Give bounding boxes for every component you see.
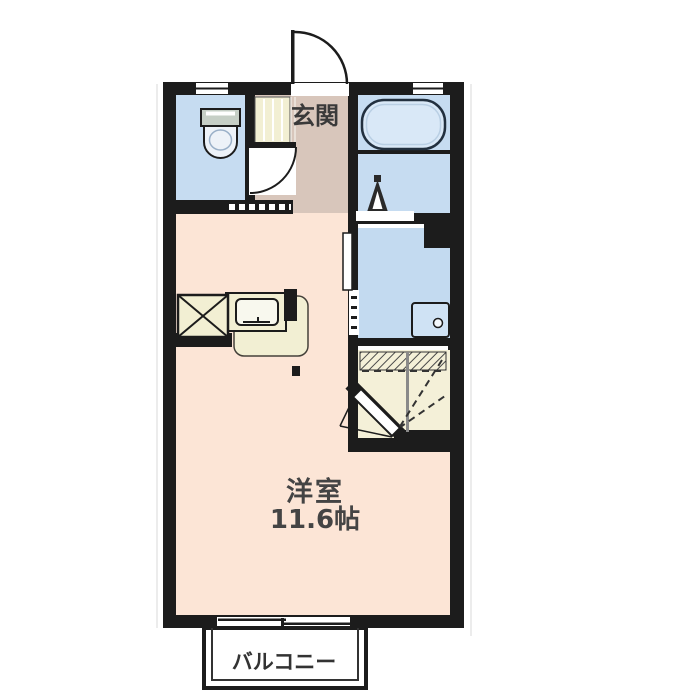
sliding-window-icon	[217, 617, 350, 627]
interior-door-swing-icon	[249, 142, 296, 195]
hall-passage	[293, 200, 348, 213]
label-entrance: 玄関	[291, 102, 339, 130]
washroom-sink-icon	[412, 303, 449, 337]
entrance-door-swing-icon	[291, 30, 349, 96]
faint-guide-right	[470, 84, 472, 636]
kitchen-wall-stub	[284, 289, 297, 321]
washroom-top-line	[358, 224, 424, 228]
window-bath-icon	[413, 83, 443, 94]
bath-divider-wall	[358, 150, 450, 154]
refrigerator-space-icon	[178, 295, 228, 337]
window-toilet-icon	[196, 83, 228, 94]
floorplan-drawing: 玄関 洋室 11.6帖 バルコニー	[0, 0, 700, 700]
closet-top-line	[358, 346, 448, 350]
shoe-cabinet	[255, 97, 290, 143]
kitchen-post	[292, 366, 300, 376]
label-balcony: バルコニー	[232, 650, 337, 674]
label-main-room-size: 11.6帖	[270, 505, 360, 535]
toilet-icon	[201, 109, 240, 158]
bathtub-icon	[362, 100, 445, 149]
label-main-room: 洋室	[286, 476, 344, 508]
floorplan-canvas: 玄関 洋室 11.6帖 バルコニー	[0, 0, 700, 700]
faint-guide-left	[156, 84, 158, 628]
washroom-wall-notch	[424, 228, 452, 248]
